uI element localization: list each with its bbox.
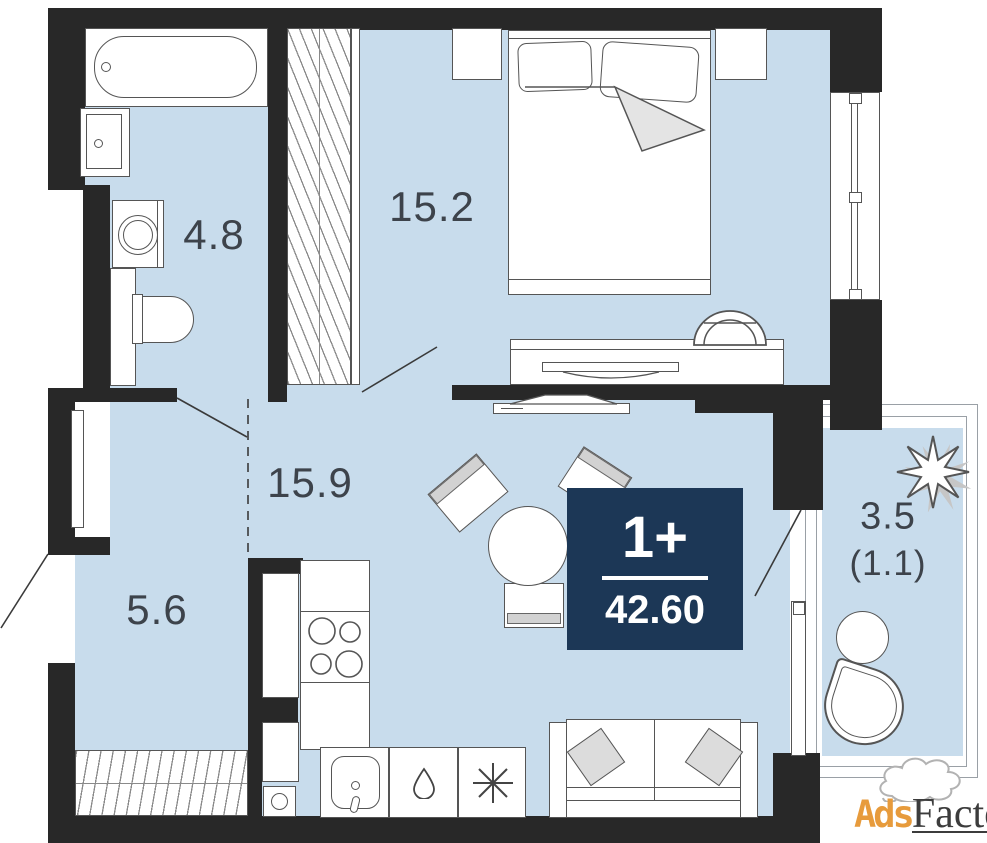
entry-door-swing <box>1 554 48 628</box>
wall-bottom <box>48 816 820 843</box>
wall-right-upper <box>830 8 882 92</box>
balcony-door-leaf-icon <box>791 601 806 756</box>
badge-layout-label: 1+ <box>622 509 688 567</box>
room-label-hall: 15.9 <box>267 459 353 507</box>
nightstand-icon-right <box>715 28 767 80</box>
wall-left-middle <box>83 185 110 402</box>
kitchen-cabinet-2 <box>262 722 299 782</box>
wall-kitchen-top <box>248 558 303 574</box>
sofa-icon-arm-left <box>549 722 567 818</box>
washing-machine-icon <box>112 200 164 268</box>
window-sash-bottom <box>849 289 862 300</box>
badge-divider <box>602 576 708 580</box>
sink-faucet-dot <box>351 781 360 790</box>
wall-kitchen-vertical <box>248 558 262 816</box>
window-sash-mid <box>849 192 862 203</box>
kitchen-sink-icon <box>320 747 389 818</box>
bed-foot-line <box>509 279 710 280</box>
chair-backrest <box>507 613 561 624</box>
sofa-center-line <box>654 720 655 800</box>
sink-basin <box>86 114 122 169</box>
wardrobe-sliding-door <box>351 28 360 385</box>
watermark-text: AdsFactory <box>854 793 987 836</box>
window-sash-top <box>849 93 862 104</box>
wall-step-1 <box>695 400 775 413</box>
room-label-bedroom: 15.2 <box>389 183 475 231</box>
bed-blanket-fold <box>509 31 712 296</box>
floor-plan: 1+ 42.60 <box>0 0 987 843</box>
wardrobe-hatch-icon-hall <box>75 750 248 816</box>
sink-drain <box>94 139 103 148</box>
wall-right-mid <box>830 300 882 430</box>
watermark-ads: Ads <box>854 793 912 836</box>
wall-bath-right <box>268 28 287 402</box>
wall-balcony-side <box>773 400 823 510</box>
dining-table-icon <box>488 506 568 586</box>
wardrobe-hatch-icon-bedroom <box>287 28 351 385</box>
dining-chair-icon-bottom <box>504 583 564 628</box>
wardrobe-centerline <box>319 29 320 384</box>
toilet-icon-bowl <box>142 296 194 343</box>
balcony-door-handle <box>793 602 805 615</box>
sofa-icon-arm-right <box>740 722 758 818</box>
sofa-icon-body <box>566 719 741 818</box>
washer-panel-line <box>157 201 158 267</box>
dishwasher-unit <box>389 747 458 818</box>
bathtub-drain <box>101 62 111 72</box>
bathtub-icon <box>85 28 268 107</box>
bed-icon <box>508 30 711 295</box>
room-label-bathroom: 4.8 <box>183 211 244 259</box>
kitchen-tall-cabinet <box>262 573 299 698</box>
room-label-balcony: 3.5 <box>860 496 916 539</box>
sofa-pillow-left <box>567 728 625 786</box>
room-label-balcony-secondary: (1.1) <box>850 544 927 584</box>
dishwasher-drop-icon <box>411 767 437 799</box>
wall-bottom-right-block <box>773 753 820 843</box>
tv-detail-line <box>501 408 523 409</box>
stove-burners-icon <box>301 561 371 751</box>
fridge-unit <box>458 747 526 818</box>
kitchen-counter-column <box>300 560 370 750</box>
entry-door-leaf-icon <box>71 410 84 528</box>
room-label-room2: 5.6 <box>126 586 187 634</box>
bedroom-window-icon <box>830 92 880 300</box>
wall-top <box>48 8 878 30</box>
desk-chair-icon <box>689 297 771 347</box>
wardrobe-centerline-2 <box>76 783 247 784</box>
bathtub-basin <box>94 36 257 98</box>
badge-area-value: 42.60 <box>605 590 705 630</box>
sofa-seat-line-1 <box>567 787 740 788</box>
boiler-circle <box>271 793 288 810</box>
watermark-logo: AdsFactory <box>850 740 987 843</box>
kitchen-boiler <box>263 786 296 817</box>
watermark-factory: Factory <box>912 797 987 833</box>
wall-cabinet-divider <box>262 698 298 722</box>
washer-door-inner <box>123 220 153 250</box>
area-badge: 1+ 42.60 <box>567 488 743 650</box>
bathroom-sink-icon <box>80 108 130 177</box>
balcony-table-icon <box>836 611 889 664</box>
nightstand-icon-left <box>452 28 502 80</box>
fridge-snowflake-icon <box>471 761 515 805</box>
sofa-pillow-right <box>685 728 743 786</box>
sofa-seat-line-2 <box>567 800 740 801</box>
tv-stand <box>495 393 635 405</box>
